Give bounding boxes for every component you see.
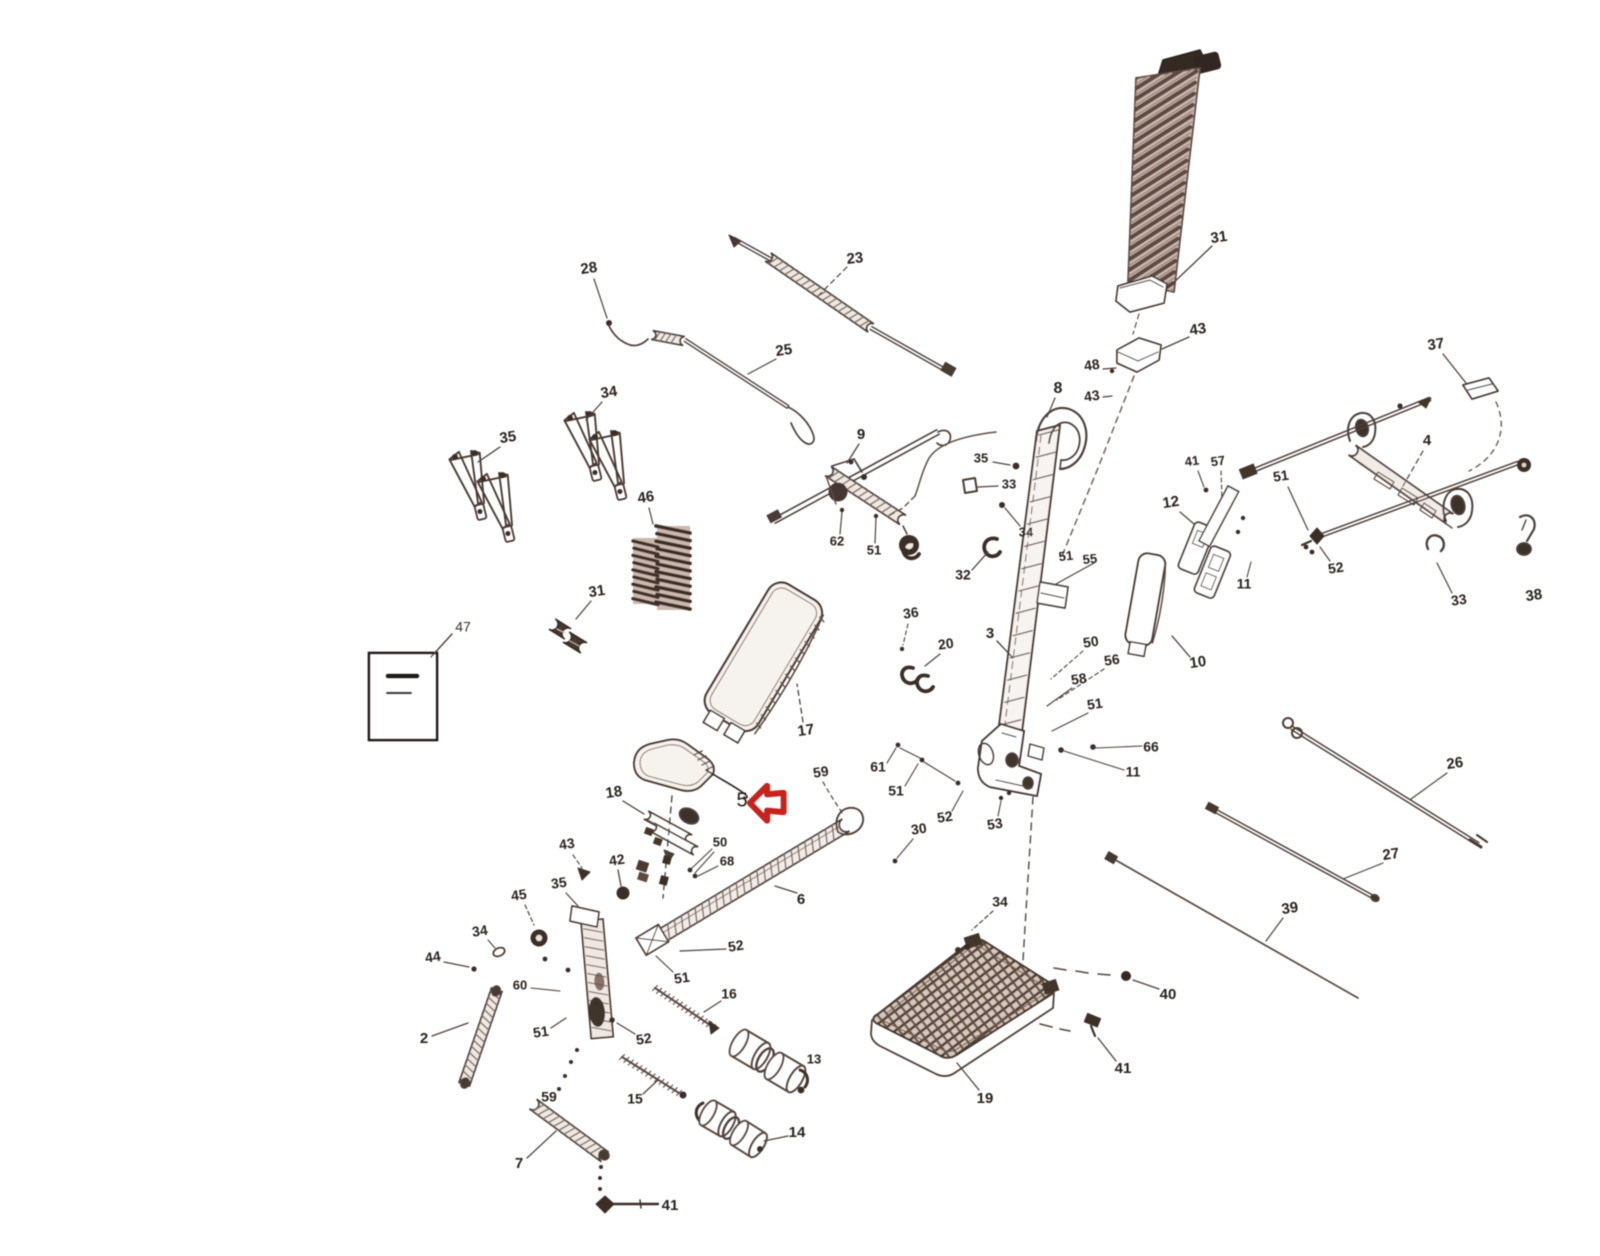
svg-text:53: 53 <box>986 815 1004 833</box>
svg-text:30: 30 <box>910 820 928 838</box>
svg-text:12: 12 <box>1161 493 1180 512</box>
svg-text:51: 51 <box>867 542 881 557</box>
svg-text:17: 17 <box>796 721 815 740</box>
svg-text:31: 31 <box>587 582 606 601</box>
svg-text:23: 23 <box>846 249 864 268</box>
svg-text:34: 34 <box>599 383 619 402</box>
svg-text:47: 47 <box>455 619 471 635</box>
svg-text:26: 26 <box>1445 754 1464 773</box>
svg-text:42: 42 <box>608 851 626 869</box>
svg-text:34: 34 <box>1019 524 1034 539</box>
svg-text:33: 33 <box>1450 591 1468 609</box>
svg-text:35: 35 <box>550 874 568 892</box>
svg-text:34: 34 <box>992 894 1008 910</box>
svg-text:41: 41 <box>1184 453 1200 470</box>
svg-text:52: 52 <box>635 1030 653 1048</box>
svg-text:4: 4 <box>1423 432 1432 449</box>
svg-text:52: 52 <box>936 808 954 826</box>
svg-text:68: 68 <box>720 853 734 868</box>
svg-text:59: 59 <box>812 763 830 781</box>
svg-text:48: 48 <box>1083 356 1101 374</box>
svg-text:41: 41 <box>662 1197 679 1214</box>
svg-text:57: 57 <box>1210 453 1226 470</box>
svg-text:51: 51 <box>1058 548 1074 564</box>
svg-text:5: 5 <box>736 789 747 811</box>
svg-text:11: 11 <box>1126 764 1141 780</box>
svg-text:58: 58 <box>1070 670 1088 688</box>
svg-text:50: 50 <box>1082 633 1100 651</box>
svg-text:44: 44 <box>424 948 442 966</box>
svg-text:28: 28 <box>579 259 598 278</box>
svg-text:14: 14 <box>789 1124 806 1141</box>
svg-text:61: 61 <box>870 759 886 775</box>
svg-text:31: 31 <box>1209 228 1228 247</box>
svg-text:40: 40 <box>1160 986 1177 1003</box>
svg-text:37: 37 <box>1426 335 1445 354</box>
svg-text:2: 2 <box>420 1030 428 1047</box>
svg-text:13: 13 <box>807 1051 821 1066</box>
svg-text:32: 32 <box>955 567 971 583</box>
svg-text:36: 36 <box>902 604 920 622</box>
svg-text:50: 50 <box>713 834 727 849</box>
svg-text:34: 34 <box>471 922 489 940</box>
svg-text:59: 59 <box>541 1089 557 1105</box>
svg-text:35: 35 <box>974 450 988 465</box>
svg-text:35: 35 <box>498 428 517 447</box>
svg-text:51: 51 <box>888 783 904 799</box>
svg-text:39: 39 <box>1280 899 1299 918</box>
svg-text:38: 38 <box>1524 586 1543 605</box>
svg-text:55: 55 <box>1082 551 1098 567</box>
svg-text:56: 56 <box>1103 651 1121 669</box>
svg-text:15: 15 <box>627 1091 643 1107</box>
svg-text:33: 33 <box>1002 476 1016 491</box>
svg-text:62: 62 <box>830 533 844 548</box>
svg-text:60: 60 <box>513 977 527 992</box>
svg-text:43: 43 <box>1083 387 1101 405</box>
svg-text:51: 51 <box>1272 467 1290 485</box>
svg-text:51: 51 <box>673 969 691 987</box>
svg-text:16: 16 <box>721 986 737 1002</box>
svg-text:27: 27 <box>1381 845 1400 864</box>
svg-text:18: 18 <box>604 783 623 802</box>
svg-text:52: 52 <box>727 937 745 955</box>
svg-text:25: 25 <box>774 341 793 360</box>
svg-text:51: 51 <box>532 1023 550 1041</box>
svg-text:66: 66 <box>1143 739 1159 755</box>
svg-text:9: 9 <box>857 426 865 443</box>
svg-text:10: 10 <box>1188 653 1207 672</box>
svg-text:11: 11 <box>1237 576 1252 592</box>
svg-text:51: 51 <box>1086 695 1104 713</box>
svg-text:45: 45 <box>510 886 528 904</box>
svg-text:19: 19 <box>977 1090 994 1107</box>
svg-text:43: 43 <box>1188 320 1207 339</box>
svg-text:7: 7 <box>515 1155 523 1172</box>
svg-text:41: 41 <box>1115 1060 1132 1077</box>
svg-text:3: 3 <box>986 625 994 642</box>
svg-text:8: 8 <box>1054 380 1063 397</box>
svg-text:6: 6 <box>797 891 805 908</box>
svg-text:46: 46 <box>636 488 655 507</box>
svg-text:43: 43 <box>558 835 576 853</box>
svg-text:20: 20 <box>937 635 955 653</box>
